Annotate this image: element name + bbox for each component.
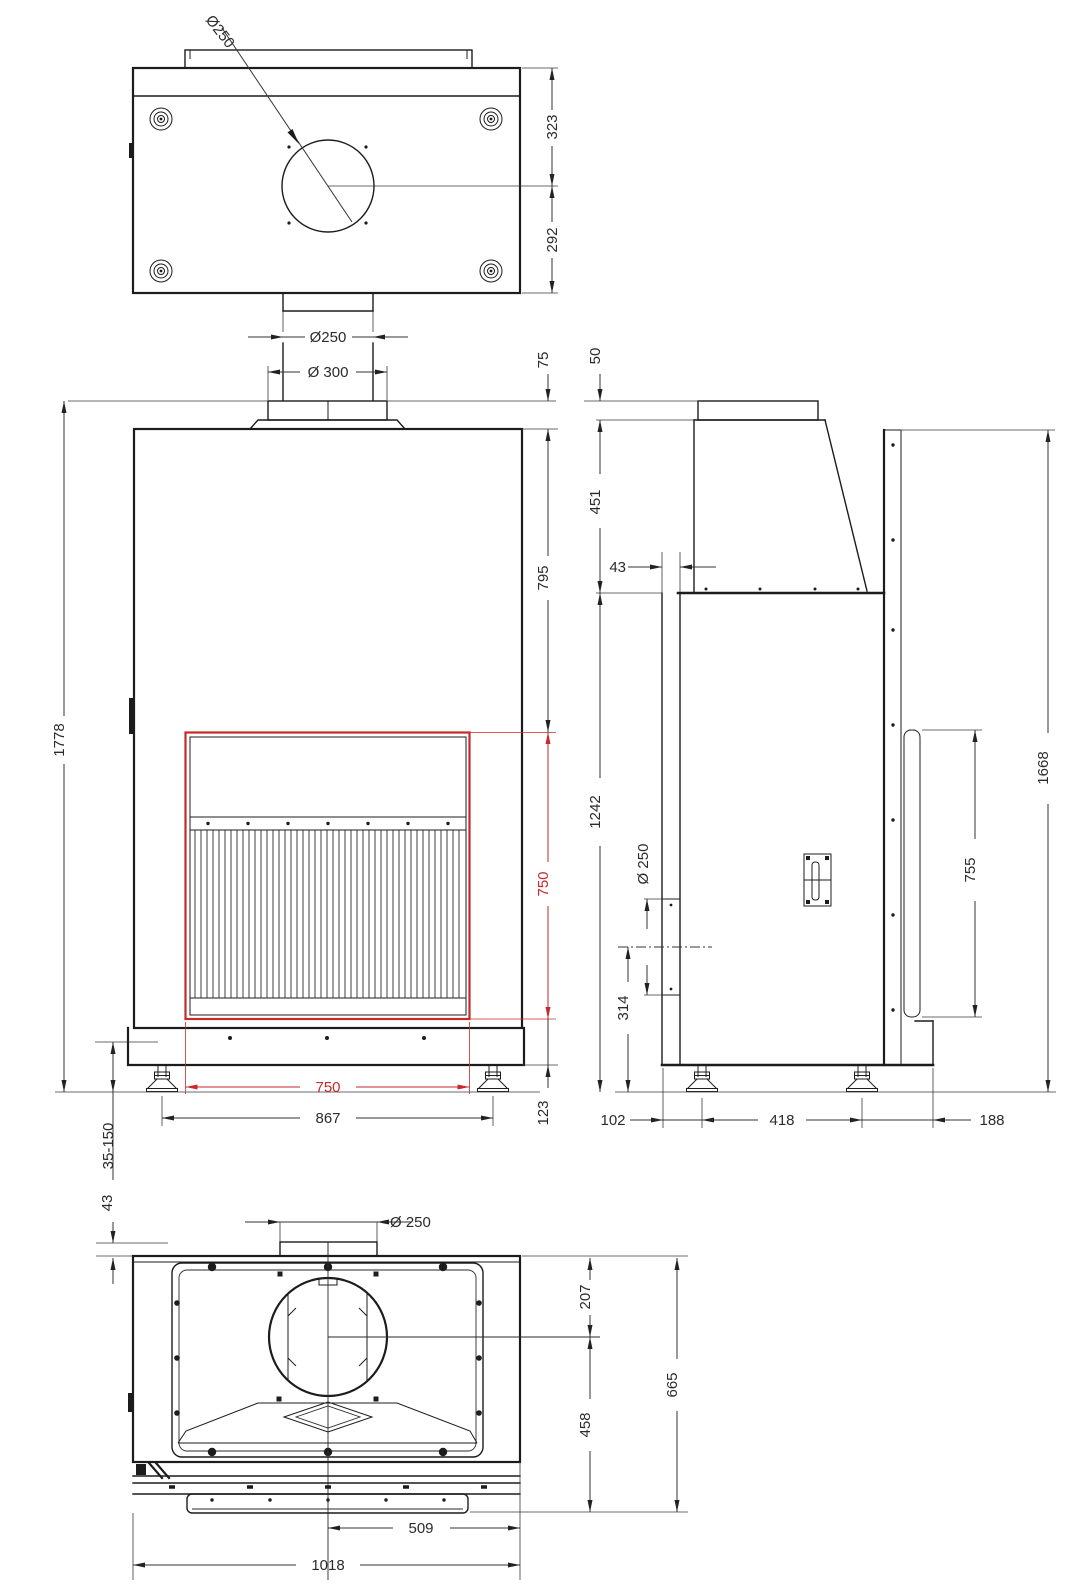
latch-plate (804, 854, 831, 906)
dim-front-collar-height: 75 (535, 352, 552, 369)
dim-side-shield-height: 755 (962, 857, 979, 882)
dim-front-top-to-opening: 795 (535, 565, 552, 590)
rear-heat-shield (904, 730, 920, 1017)
dim-top-depth-back: 323 (544, 114, 561, 139)
side-collar (698, 401, 818, 420)
smoke-deflector (178, 1403, 477, 1443)
side-view: 50 451 43 1242 Ø 250 314 755 1668 (584, 348, 1056, 1129)
side-tab (129, 698, 134, 734)
grille-louvers (195, 830, 459, 998)
dim-bottom-width: 1018 (311, 1557, 344, 1574)
side-tab (129, 143, 134, 158)
strip-screws (169, 1485, 487, 1489)
side-tab (128, 1393, 133, 1412)
dim-top-spigot: Ø250 (310, 329, 347, 346)
dim-front-base-height: 123 (535, 1100, 552, 1125)
dim-front-wall-gap: 43 (99, 1195, 116, 1212)
top-body-outline (133, 68, 520, 293)
dim-side-front-foot: 102 (600, 1112, 625, 1129)
dim-bottom-depth: 665 (664, 1372, 681, 1397)
bottom-view: Ø 250 (128, 1214, 688, 1580)
trim-plate-dots (210, 1498, 445, 1501)
dim-side-rear-foot: 188 (979, 1112, 1004, 1129)
base-screw-dots (228, 1036, 426, 1040)
drawing-sheet: Ø250 323 292 Ø250 (0, 0, 1077, 1588)
opening-highlight (186, 733, 470, 1020)
back-panel-screw-dots (891, 443, 894, 1011)
dim-side-total-height: 1668 (1035, 751, 1052, 784)
hood-screw-dots (705, 588, 860, 591)
dim-bottom-center-to-front: 458 (577, 1412, 594, 1437)
dim-bottom-back-to-center: 207 (577, 1284, 594, 1309)
dim-bottom-spigot: Ø 250 (390, 1214, 431, 1231)
dim-top-flue-leader: Ø250 (202, 12, 238, 51)
fireplace-technical-drawing: Ø250 323 292 Ø250 (0, 0, 1077, 1588)
front-trim-plate (187, 1494, 468, 1513)
dim-side-front-offset: 43 (609, 559, 626, 576)
dim-front-collar: Ø 300 (308, 364, 349, 381)
dim-side-collar-height: 50 (587, 348, 604, 365)
dim-side-rear-flue: Ø 250 (635, 844, 652, 885)
dim-front-opening-height: 750 (535, 871, 552, 896)
front-view: 1778 Ø 300 75 795 750 123 750 867 (51, 343, 558, 1284)
frame-screw-dots (206, 822, 449, 825)
dim-front-total-height: 1778 (51, 723, 68, 756)
dim-top-depth-front: 292 (544, 227, 561, 252)
dim-side-feet-span: 418 (769, 1112, 794, 1129)
dim-front-feet-range: 35-150 (100, 1123, 117, 1170)
dim-front-feet-span: 867 (315, 1110, 340, 1127)
collar-flange (250, 420, 405, 429)
dim-side-hood-height: 451 (587, 489, 604, 514)
dim-bottom-center-to-side: 509 (408, 1520, 433, 1537)
dim-side-flue-center-height: 314 (615, 995, 632, 1020)
base-plinth (128, 1028, 524, 1065)
leader-line (222, 28, 352, 222)
dim-front-opening-width: 750 (315, 1079, 340, 1096)
front-body-outline (134, 429, 522, 1028)
top-flange (185, 50, 472, 68)
dim-side-hood-to-floor: 1242 (587, 795, 604, 828)
top-view: Ø250 323 292 Ø250 (129, 12, 561, 346)
